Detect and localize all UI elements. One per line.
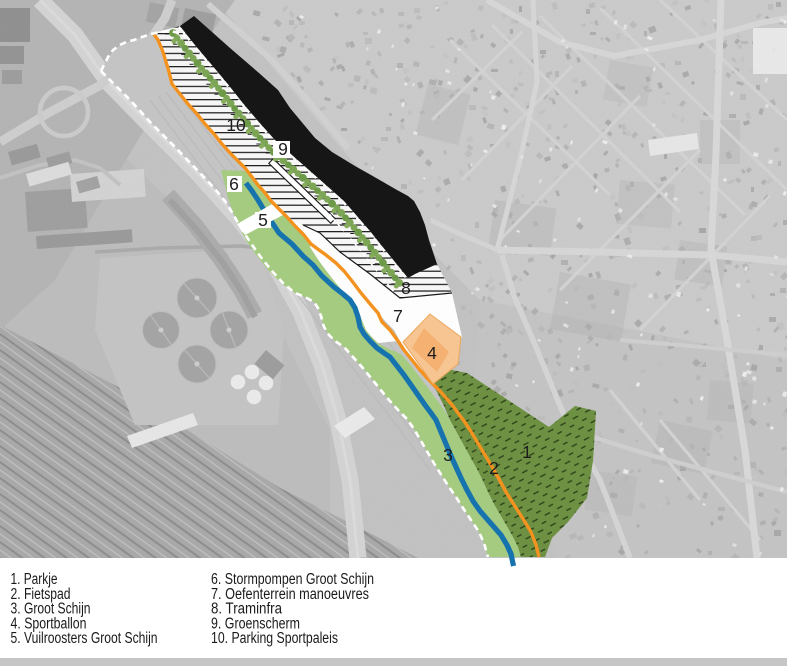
svg-text:10. Parking Sportpaleis: 10. Parking Sportpaleis (211, 630, 338, 647)
svg-text:9: 9 (278, 139, 288, 159)
svg-text:5. Vuilroosters Groot Schijn: 5. Vuilroosters Groot Schijn (11, 630, 158, 647)
svg-text:2: 2 (489, 458, 499, 478)
svg-text:3: 3 (443, 445, 453, 465)
svg-text:4: 4 (427, 343, 437, 363)
svg-text:7: 7 (393, 306, 403, 326)
svg-text:5: 5 (258, 210, 268, 230)
svg-text:8: 8 (401, 278, 411, 298)
svg-text:1: 1 (522, 442, 532, 462)
svg-text:10: 10 (226, 115, 246, 135)
svg-text:6: 6 (229, 174, 239, 194)
